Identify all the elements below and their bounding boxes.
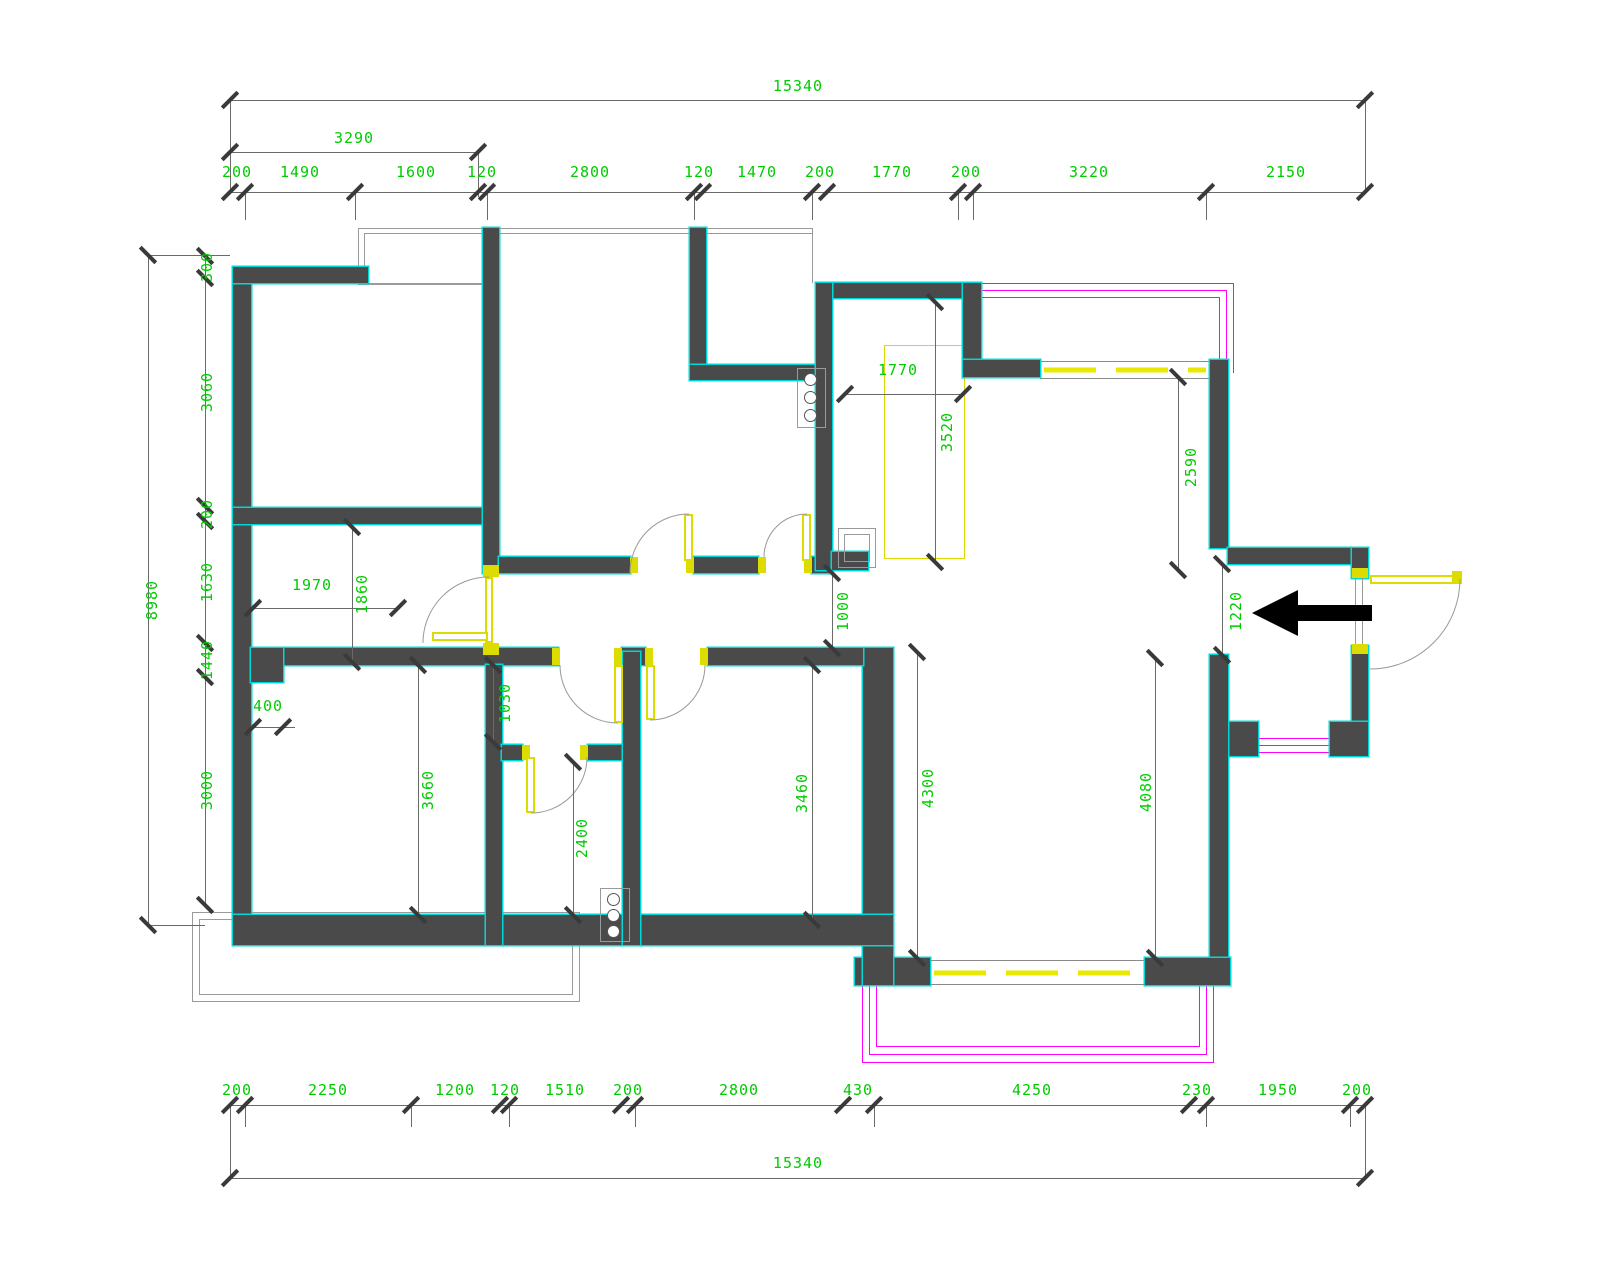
door-swing-arc [650, 665, 705, 720]
dim-line-top-sub [230, 152, 478, 153]
dim-label: 1770 [878, 361, 918, 379]
dim-label: 1220 [1227, 591, 1245, 631]
dim-label: 200 [222, 1081, 252, 1099]
dim-line-bottom-total [230, 1178, 1365, 1179]
ext-line [958, 192, 959, 220]
dim-label: 1470 [737, 163, 777, 181]
ext-line [635, 1105, 636, 1127]
dim-label: 1200 [435, 1081, 475, 1099]
dim-label-bottom-total: 15340 [773, 1154, 823, 1172]
dim-label: 1600 [396, 163, 436, 181]
ext-line [874, 1105, 875, 1127]
dim-label: 200 [222, 163, 252, 181]
dim-line-400 [253, 727, 295, 728]
dim-label: 3060 [198, 372, 216, 412]
ext-line [355, 192, 356, 220]
dim-line-1220 [1222, 564, 1223, 655]
door-swing-arc [560, 665, 618, 723]
dim-label: 2590 [1182, 447, 1200, 487]
dim-line-3520 [935, 302, 936, 562]
ext-line [509, 1105, 510, 1127]
dim-label: 120 [490, 1081, 520, 1099]
dim-label: 3520 [938, 412, 956, 452]
dim-line-top-total [230, 100, 1365, 101]
dim-label: 120 [467, 163, 497, 181]
ext-line [487, 192, 488, 220]
dim-label: 2150 [1266, 163, 1306, 181]
dim-label: 120 [684, 163, 714, 181]
dim-label: 1770 [872, 163, 912, 181]
dim-label: 1000 [834, 591, 852, 631]
ext-line [245, 1105, 246, 1127]
dim-label: 1490 [280, 163, 320, 181]
door-swing-arc [423, 577, 489, 643]
ext-line [1206, 192, 1207, 220]
dim-label: 2400 [573, 818, 591, 858]
dim-label: 3660 [419, 770, 437, 810]
dim-label: 200 [613, 1081, 643, 1099]
dim-label: 1630 [198, 562, 216, 602]
dim-label: 4250 [1012, 1081, 1052, 1099]
ext-line [230, 1105, 231, 1178]
dim-label: 3220 [1069, 163, 1109, 181]
dim-label: 1440 [198, 640, 216, 680]
dim-label: 4080 [1137, 772, 1155, 812]
ext-line [1365, 1105, 1366, 1178]
entry-arrow-shaft [1296, 605, 1372, 621]
ext-line [1206, 1105, 1207, 1127]
dim-line-1000 [832, 573, 833, 648]
dim-label: 1950 [1258, 1081, 1298, 1099]
dim-label: 3000 [198, 770, 216, 810]
dim-label: 230 [1182, 1081, 1212, 1099]
dim-label: 3460 [793, 773, 811, 813]
dim-line-bottom-chain [230, 1105, 1365, 1106]
ext-line [812, 192, 813, 220]
ext-line [1365, 100, 1366, 192]
dim-line-1970 [253, 608, 398, 609]
dim-line-4300 [917, 652, 918, 958]
dim-label: 200 [805, 163, 835, 181]
door-swing-arc [764, 514, 807, 557]
dim-line-3460 [812, 665, 813, 920]
ext-line [1350, 1105, 1351, 1127]
dim-label: 200 [198, 499, 216, 529]
dim-label: 430 [843, 1081, 873, 1099]
dim-label: 200 [951, 163, 981, 181]
ext-line [148, 925, 205, 926]
dim-label: 1510 [545, 1081, 585, 1099]
dim-label: 200 [1342, 1081, 1372, 1099]
dim-label: 2800 [570, 163, 610, 181]
dim-label: 1970 [292, 576, 332, 594]
dim-label: 1030 [496, 683, 514, 723]
floor-plan-canvas: 15340 3290 200 1490 1600 120 2800 120 14… [0, 0, 1600, 1280]
dim-line-2590 [1178, 377, 1179, 570]
dim-label: 1860 [353, 574, 371, 614]
ext-line [148, 255, 230, 256]
ext-line [973, 192, 974, 220]
dim-label: 2250 [308, 1081, 348, 1099]
entry-arrow-head [1252, 590, 1298, 636]
dim-label-top-total: 15340 [773, 77, 823, 95]
ext-line [245, 192, 246, 220]
dim-label-left-outer: 8980 [143, 580, 161, 620]
door-swing-arc [1370, 579, 1460, 669]
dim-line-top-chain [230, 192, 1365, 193]
dim-label: 2800 [719, 1081, 759, 1099]
dim-line-4080 [1155, 658, 1156, 958]
ext-line [411, 1105, 412, 1127]
dim-label: 4300 [919, 768, 937, 808]
dim-line-1770 [845, 394, 963, 395]
dim-line-1030 [493, 665, 494, 742]
dim-label-top-sub: 3290 [334, 129, 374, 147]
dim-label: 300 [198, 252, 216, 282]
dim-label: 400 [253, 697, 283, 715]
door-swing-arc [630, 514, 689, 573]
